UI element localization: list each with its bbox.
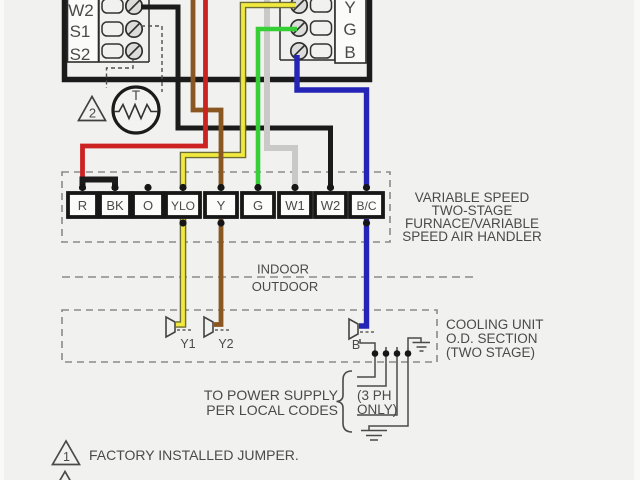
terminal-strip-label: O bbox=[143, 198, 153, 213]
wire-slot bbox=[102, 22, 123, 36]
indoor-outdoor-boundary: INDOOR OUTDOOR bbox=[62, 262, 478, 295]
wire-slot bbox=[311, 0, 332, 12]
wire-slot bbox=[102, 44, 123, 58]
terminal-strip-label: B/C bbox=[356, 199, 376, 213]
power-phase-line1: (3 PH bbox=[357, 388, 392, 403]
wire-slot bbox=[311, 21, 332, 35]
wire-slot bbox=[311, 44, 332, 58]
terminal-strip-label: G bbox=[253, 198, 263, 213]
power-note-line2: PER LOCAL CODES bbox=[206, 402, 338, 418]
sensor-label: T bbox=[132, 88, 140, 103]
terminal-strip-label: R bbox=[78, 198, 87, 213]
terminal-label-s2: S2 bbox=[70, 45, 91, 64]
terminal-label-w2: W2 bbox=[68, 1, 94, 20]
terminal-block-left: W2 S1 S2 bbox=[68, 0, 150, 64]
contactor-horn-b bbox=[349, 319, 358, 339]
furnace-terminal-strip: R BK O YLO Y G W1 W2 B/C bbox=[68, 184, 383, 227]
cooling-note-line: O.D. SECTION bbox=[446, 331, 538, 346]
cooling-note: COOLING UNIT O.D. SECTION (TWO STAGE) bbox=[446, 317, 544, 360]
terminal-strip-label: W2 bbox=[321, 198, 341, 213]
terminal-strip-label: W1 bbox=[285, 198, 305, 213]
terminal-label-s1: S1 bbox=[70, 22, 91, 41]
left-edge-strip bbox=[0, 0, 4, 480]
cooling-dashed-box bbox=[62, 310, 437, 362]
jumper-r-bk bbox=[83, 180, 116, 191]
wire-slot bbox=[102, 0, 123, 13]
cooling-note-line: COOLING UNIT bbox=[446, 317, 544, 332]
cooling-unit: Y1 Y2 B bbox=[166, 317, 430, 440]
furnace-note-line: SPEED AIR HANDLER bbox=[402, 229, 542, 244]
legend-triangle-2-partial bbox=[52, 472, 79, 480]
indoor-label: INDOOR bbox=[257, 262, 309, 277]
cooling-note-line: (TWO STAGE) bbox=[446, 345, 535, 360]
contactor-label-b: B bbox=[352, 338, 360, 352]
note-triangle-2-number: 2 bbox=[89, 106, 96, 121]
wire-brown-y2 bbox=[214, 219, 221, 325]
contactor-horn-y1 bbox=[166, 317, 175, 337]
wire-yellow-ylo bbox=[183, 5, 296, 186]
wiring-diagram: W2 S1 S2 Y G B 2 T I bbox=[0, 0, 640, 480]
furnace-note: VARIABLE SPEED TWO-STAGE FURNACE/VARIABL… bbox=[402, 190, 542, 244]
legend: 1 FACTORY INSTALLED JUMPER. bbox=[52, 441, 299, 480]
contactor-horn-y2 bbox=[204, 317, 213, 337]
ground-symbol-unit bbox=[413, 343, 431, 352]
terminal-strip-label: YLO bbox=[171, 199, 195, 213]
legend-note-1: FACTORY INSTALLED JUMPER. bbox=[89, 447, 299, 463]
terminal-block-right: Y G B bbox=[280, 0, 366, 63]
power-supply-note: TO POWER SUPPLY PER LOCAL CODES (3 PH ON… bbox=[204, 387, 397, 418]
screw-terminal bbox=[126, 0, 142, 59]
contactor-label-y1: Y1 bbox=[180, 337, 195, 351]
terminal-label-g: G bbox=[343, 20, 356, 39]
power-dots bbox=[372, 350, 412, 357]
outdoor-label: OUTDOOR bbox=[252, 279, 318, 294]
wire-yellow-y1 bbox=[176, 219, 183, 325]
ground-symbol-supply bbox=[361, 431, 387, 441]
terminal-label-y: Y bbox=[344, 0, 355, 17]
contactor-label-y2: Y2 bbox=[218, 337, 233, 351]
power-phase-line2: ONLY) bbox=[357, 402, 397, 417]
right-edge-strip bbox=[634, 0, 640, 480]
legend-triangle-1-number: 1 bbox=[63, 450, 70, 464]
power-note-line1: TO POWER SUPPLY bbox=[204, 387, 339, 403]
terminal-strip-label: BK bbox=[106, 198, 124, 213]
power-brace bbox=[337, 371, 353, 432]
terminal-strip-label: Y bbox=[217, 198, 226, 213]
terminal-label-b: B bbox=[344, 43, 355, 62]
diagram-canvas: W2 S1 S2 Y G B 2 T I bbox=[0, 0, 640, 480]
